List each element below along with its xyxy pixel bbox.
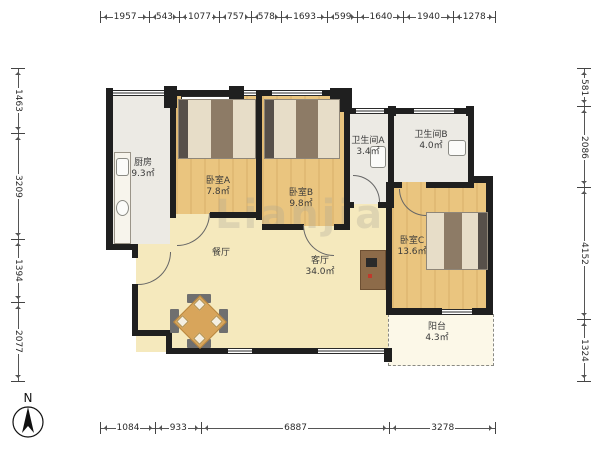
dimension-value: 6887 <box>283 423 308 433</box>
dimension-value: 3209 <box>13 174 23 199</box>
dimension-segment: 1278 <box>453 11 496 23</box>
dimension-segment: 4152 <box>577 187 591 318</box>
dimension-value: 4152 <box>579 241 589 266</box>
window <box>228 348 252 354</box>
room-name: 厨房 <box>131 158 154 169</box>
wall-segment <box>344 202 354 208</box>
window <box>442 309 472 315</box>
dimension-segment: 757 <box>219 11 251 23</box>
stove-icon <box>116 158 129 176</box>
dimension-value: 1693 <box>292 12 317 22</box>
wall-segment <box>106 88 113 250</box>
dimension-value: 757 <box>226 12 245 22</box>
dimension-value: 2077 <box>13 329 23 354</box>
room-area: 34.0㎡ <box>305 267 334 278</box>
room-area: 3.4㎡ <box>351 147 384 158</box>
room-area: 7.8㎡ <box>206 187 230 198</box>
dimension-value: 578 <box>257 12 276 22</box>
tv-cabinet-icon <box>360 250 386 290</box>
dimension-value: 543 <box>155 12 174 22</box>
dimension-value: 1324 <box>579 338 589 363</box>
room-name: 卫生间A <box>351 136 384 147</box>
compass-icon: N <box>8 392 48 444</box>
wall-segment <box>262 224 304 230</box>
dimension-segment: 1957 <box>100 11 149 23</box>
dimension-value: 1084 <box>116 423 141 433</box>
room-label-bathroom-b: 卫生间B 4.0㎡ <box>414 130 447 153</box>
dimension-value: 1394 <box>13 258 23 283</box>
washbasin-icon <box>448 140 466 156</box>
dimension-segment: 599 <box>327 11 357 23</box>
compass-needle-icon <box>10 404 46 440</box>
dimension-segment: 1693 <box>281 11 328 23</box>
room-label-kitchen: 厨房 9.3㎡ <box>131 158 154 181</box>
wall-segment <box>386 308 442 315</box>
wall-segment <box>256 90 262 220</box>
window <box>414 108 454 114</box>
room-name: 阳台 <box>425 322 448 333</box>
room-name: 餐厅 <box>212 248 230 259</box>
dimension-segment: 1463 <box>11 68 25 133</box>
dimension-value: 1640 <box>369 12 394 22</box>
window <box>113 90 164 96</box>
dimension-value: 1957 <box>113 12 138 22</box>
bed-icon <box>178 99 256 159</box>
dimension-segment: 1084 <box>100 422 155 434</box>
dimension-segment: 581 <box>577 68 591 106</box>
tv-icon <box>366 258 377 267</box>
room-area: 4.3㎡ <box>425 333 448 344</box>
dimension-chain-bottom: 1084 933 6887 3278 <box>100 422 496 434</box>
sink-icon <box>116 200 129 216</box>
wall-segment <box>252 348 318 354</box>
bed-icon <box>264 99 340 159</box>
room-name: 卫生间B <box>414 130 447 141</box>
dimension-value: 599 <box>333 12 352 22</box>
room-area: 9.3㎡ <box>131 169 154 180</box>
wall-segment <box>334 224 350 230</box>
wall-segment <box>384 348 392 362</box>
room-label-bedroom-b: 卧室B 9.8㎡ <box>289 188 313 211</box>
room-label-bedroom-a: 卧室A 7.8㎡ <box>206 176 230 199</box>
wall-segment <box>170 96 176 218</box>
window <box>356 108 384 114</box>
wall-segment <box>392 182 402 188</box>
wall-segment <box>106 88 113 95</box>
dimension-value: 1278 <box>462 12 487 22</box>
dimension-segment: 1324 <box>577 319 591 381</box>
room-name: 卧室C <box>397 236 426 247</box>
dimension-segment: 1077 <box>179 11 220 23</box>
dimension-segment: 2086 <box>577 106 591 187</box>
room-area: 13.6㎡ <box>397 247 426 258</box>
floor-plan-canvas: 1957 543 1077 757 578 1693 599 1640 1940… <box>0 0 600 450</box>
compass-north-label: N <box>8 392 48 404</box>
room-label-living: 客厅 34.0㎡ <box>305 256 334 279</box>
dimension-value: 3278 <box>430 423 455 433</box>
room-name: 卧室B <box>289 188 313 199</box>
room-name: 客厅 <box>305 256 334 267</box>
dimension-segment: 3209 <box>11 133 25 239</box>
room-label-balcony: 阳台 4.3㎡ <box>425 322 448 345</box>
room-label-bedroom-c: 卧室C 13.6㎡ <box>397 236 426 259</box>
dimension-segment: 3278 <box>389 422 495 434</box>
dimension-segment: 1640 <box>357 11 403 23</box>
bed-icon <box>426 212 488 270</box>
wall-segment <box>472 308 493 315</box>
room-area: 9.8㎡ <box>289 199 313 210</box>
decor-icon <box>368 274 372 278</box>
dimension-value: 1940 <box>416 12 441 22</box>
dimension-segment: 6887 <box>201 422 390 434</box>
wall-segment <box>386 182 392 314</box>
dimension-value: 1077 <box>187 12 212 22</box>
dimension-value: 1463 <box>13 88 23 113</box>
dimension-chain-right: 581 2086 4152 1324 <box>577 68 591 382</box>
dimension-value: 581 <box>579 78 589 97</box>
wall-segment <box>166 348 228 354</box>
dimension-segment: 1940 <box>403 11 452 23</box>
dimension-segment: 2077 <box>11 302 25 381</box>
wall-segment <box>426 182 474 188</box>
room-name: 卧室A <box>206 176 230 187</box>
window <box>272 90 322 96</box>
dimension-segment: 933 <box>155 422 201 434</box>
wall-segment <box>210 212 262 218</box>
room-area: 4.0㎡ <box>414 141 447 152</box>
window <box>244 90 256 96</box>
dimension-chain-top: 1957 543 1077 757 578 1693 599 1640 1940… <box>100 11 496 23</box>
dimension-chain-left: 1463 3209 1394 2077 <box>11 68 25 382</box>
window <box>318 348 386 354</box>
wall-segment <box>132 284 138 336</box>
room-label-dining: 餐厅 <box>212 248 230 259</box>
dimension-value: 2086 <box>579 135 589 160</box>
dimension-segment: 543 <box>149 11 179 23</box>
dimension-segment: 578 <box>251 11 281 23</box>
dimension-value: 933 <box>169 423 188 433</box>
dimension-segment: 1394 <box>11 239 25 302</box>
room-label-bathroom-a: 卫生间A 3.4㎡ <box>351 136 384 159</box>
